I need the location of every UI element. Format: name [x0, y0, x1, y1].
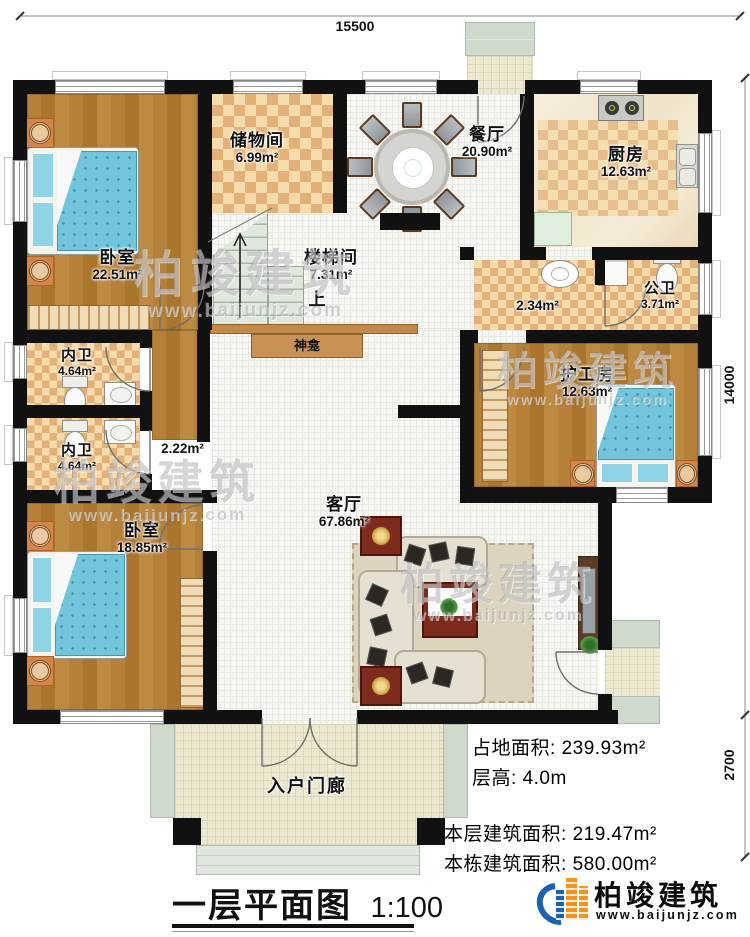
floor-plan-page: 神龛: [0, 0, 750, 937]
room-label-storage: 储物间 6.99m²: [207, 131, 307, 165]
room-area: 12.63m²: [576, 164, 676, 179]
stat-value: 239.93m²: [562, 738, 646, 759]
up-text: 上: [305, 290, 329, 309]
decor: [160, 286, 204, 330]
room-name: 内卫: [27, 443, 127, 460]
room-area: 4.64m²: [27, 365, 127, 378]
stat-floor-area: 本层建筑面积: 219.47m²: [444, 819, 657, 846]
room-name: 卧室: [92, 521, 192, 540]
room-name: 公卫: [610, 281, 710, 298]
plan-scale: 1:100: [370, 892, 443, 924]
title-underline-thin: [172, 931, 414, 932]
dimension-right-porch: 2700: [721, 741, 737, 789]
stat-value: 4.0m: [523, 768, 567, 789]
room-area: 22.51m²: [65, 267, 170, 282]
room-label-bath-lower: 内卫 4.64m²: [27, 443, 127, 473]
room-label-caregiver: 护工房 12.63m²: [537, 365, 637, 399]
door-arcs: [106, 96, 646, 766]
decor: [480, 347, 524, 391]
room-name: 护工房: [537, 365, 637, 384]
logo-building-icon: [579, 886, 588, 920]
decor: [310, 718, 357, 766]
stat-value: 219.47m²: [573, 824, 657, 845]
stat-label: 本层建筑面积:: [444, 824, 567, 845]
room-label-stairwell: 楼梯间 7.31m²: [281, 248, 381, 282]
room-area: 67.86m²: [294, 514, 394, 529]
decor: [262, 718, 310, 766]
room-label-dining: 餐厅 20.90m²: [437, 125, 537, 159]
dimension-top-width: 15500: [325, 18, 385, 34]
room-name: 卧室: [65, 248, 170, 267]
room-area: 7.31m²: [281, 267, 381, 282]
room-label-public-bath: 公卫 3.71m²: [610, 281, 710, 311]
stat-label: 占地面积:: [472, 738, 556, 759]
dimension-lines: [20, 16, 745, 857]
room-label-bath-upper: 内卫 4.64m²: [27, 348, 127, 378]
room-area: 18.85m²: [92, 540, 192, 555]
room-name: 楼梯间: [281, 248, 381, 267]
plan-title-block: 一层平面图 1:100: [172, 878, 443, 927]
decor: [556, 652, 598, 694]
room-label-entry-porch: 入户门廊: [247, 776, 367, 796]
stairs-up-label: 上: [305, 290, 329, 309]
dimension-right-height: 14000: [721, 361, 737, 409]
stat-floor-height: 层高: 4.0m: [472, 763, 567, 790]
room-area: 2.22m²: [145, 441, 220, 456]
logo-building-icon: [566, 878, 577, 920]
stat-label: 层高:: [472, 768, 517, 789]
room-label-bedroom-tl: 卧室 22.51m²: [65, 248, 170, 282]
stairs-direction-arrow: [234, 234, 246, 318]
logo-company-url: www.baijunjz.com: [596, 908, 739, 922]
room-area: 6.99m²: [207, 150, 307, 165]
room-name: 储物间: [207, 131, 307, 150]
room-label-living: 客厅 67.86m²: [294, 495, 394, 529]
room-area: 4.64m²: [27, 460, 127, 473]
title-underline: [172, 924, 414, 928]
room-name: 客厅: [294, 495, 394, 514]
plan-title: 一层平面图: [172, 887, 352, 925]
area-label-wash: 2.34m²: [500, 298, 575, 313]
company-logo: 柏竣建筑 www.baijunjz.com: [536, 872, 746, 930]
room-name: 入户门廊: [247, 776, 367, 796]
logo-building-icon: [556, 890, 564, 920]
room-area: 2.34m²: [500, 298, 575, 313]
room-name: 厨房: [576, 145, 676, 164]
room-name: 餐厅: [437, 125, 537, 144]
room-area: 12.63m²: [537, 384, 637, 399]
room-area: 20.90m²: [437, 144, 537, 159]
room-area: 3.71m²: [610, 298, 710, 311]
room-label-bedroom-bl: 卧室 18.85m²: [92, 521, 192, 555]
room-label-kitchen: 厨房 12.63m²: [576, 145, 676, 179]
stat-site-area: 占地面积: 239.93m²: [472, 733, 646, 760]
room-name: 内卫: [27, 348, 127, 365]
area-label-hallway: 2.22m²: [145, 441, 220, 456]
